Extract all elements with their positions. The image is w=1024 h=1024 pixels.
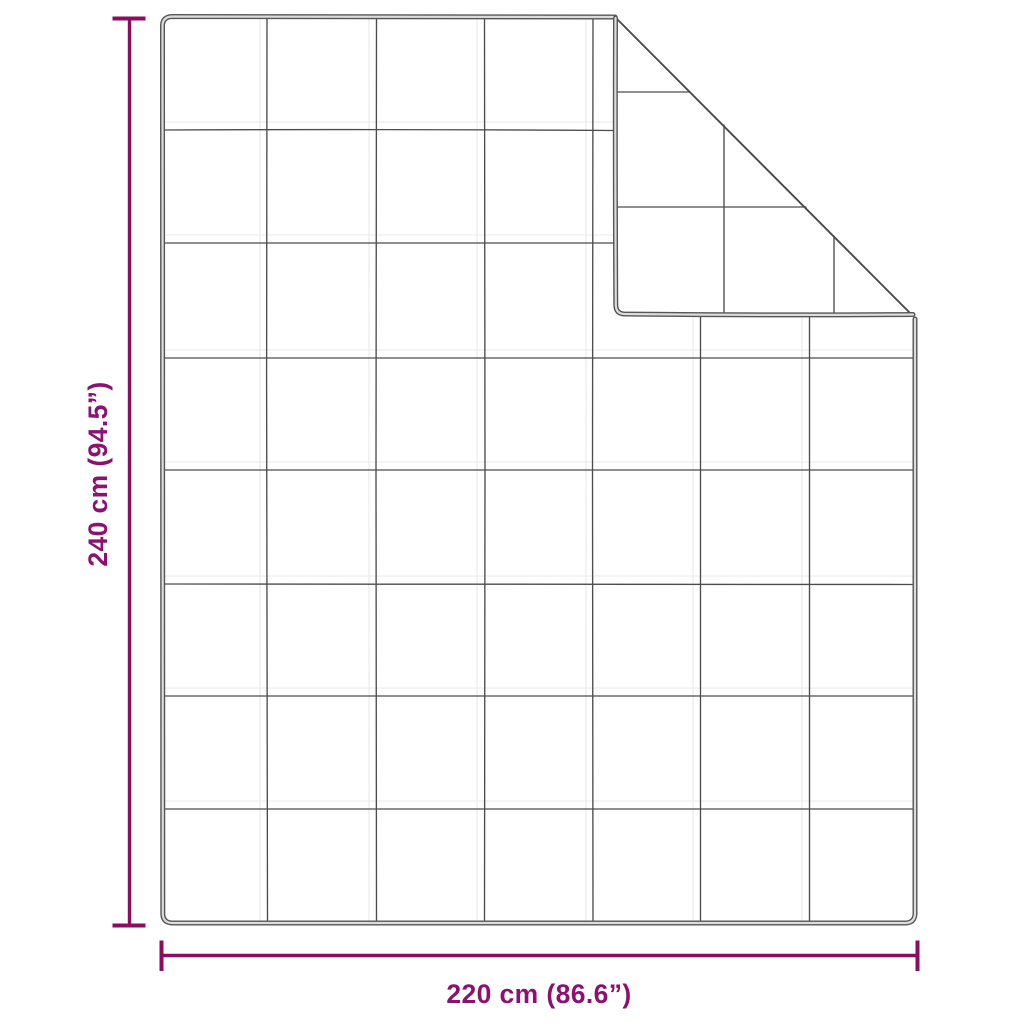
svg-text:220 cm (86.6”): 220 cm (86.6”) (446, 979, 631, 1009)
svg-text:240 cm (94.5”): 240 cm (94.5”) (83, 381, 113, 566)
